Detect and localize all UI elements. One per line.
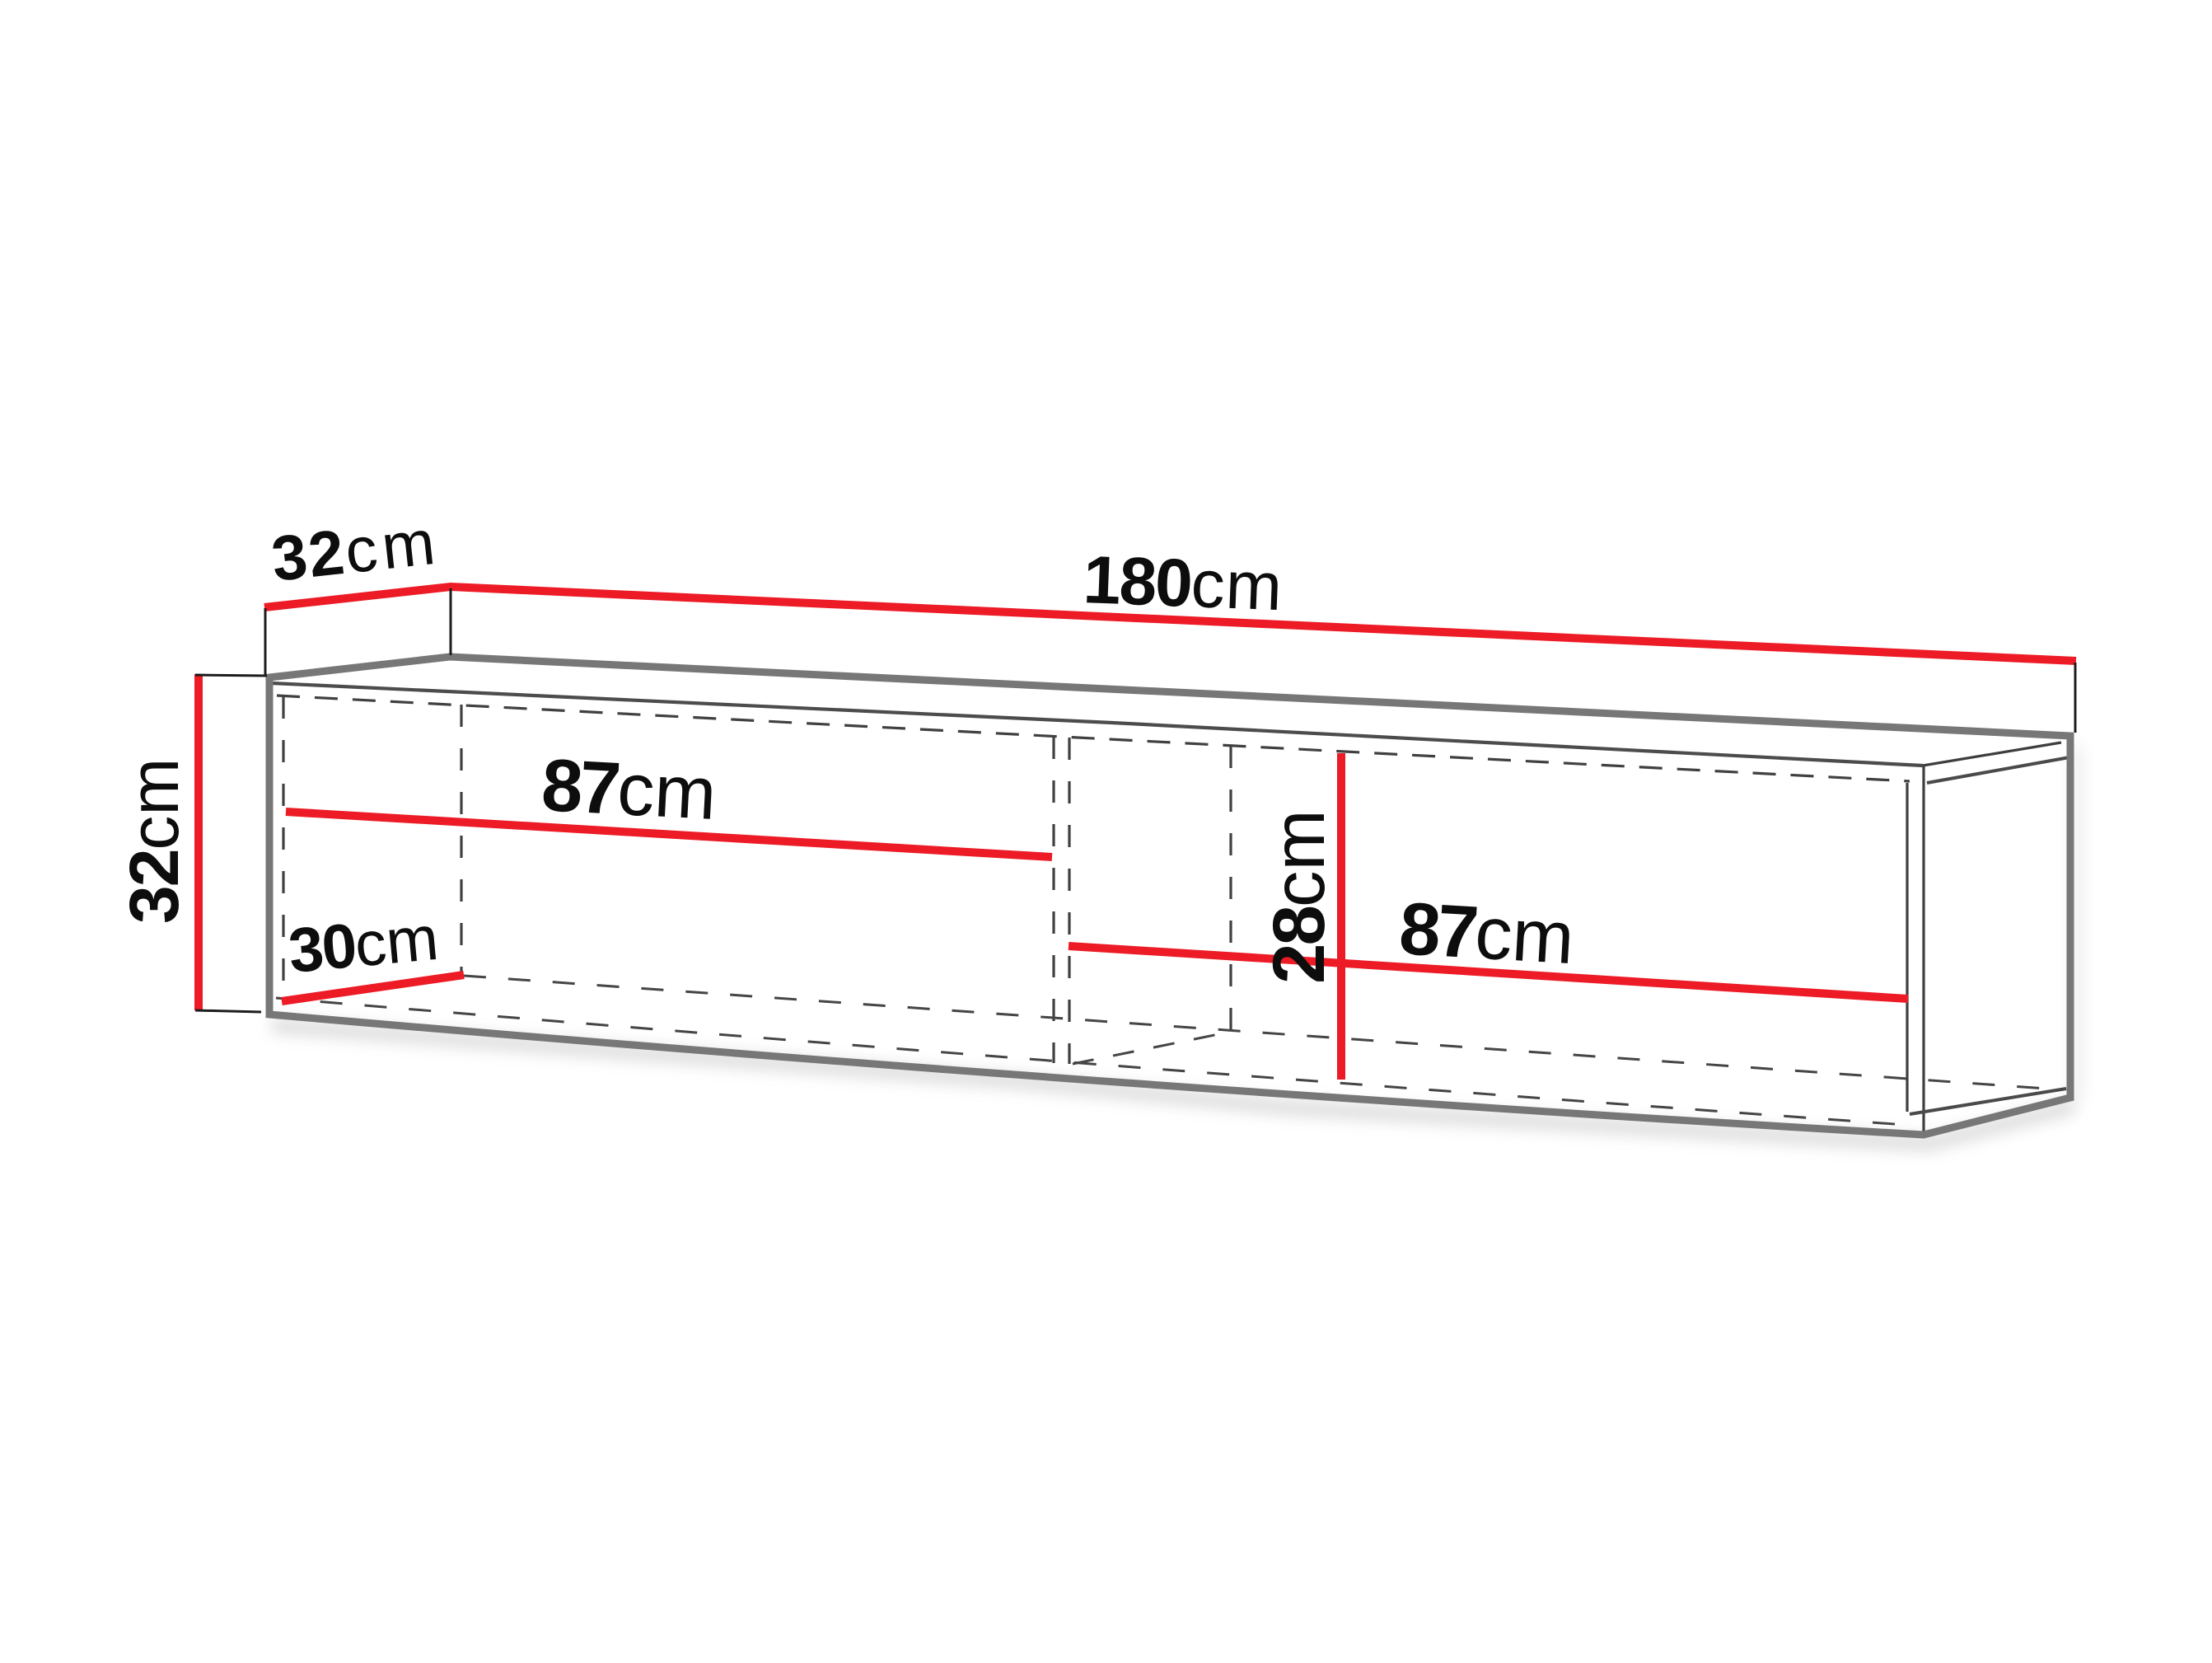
svg-text:87cm: 87cm — [540, 744, 718, 836]
svg-text:30cm: 30cm — [286, 903, 442, 986]
svg-text:28cm: 28cm — [1257, 809, 1340, 984]
svg-text:32cm: 32cm — [115, 758, 193, 924]
svg-text:180cm: 180cm — [1082, 542, 1284, 625]
svg-text:87cm: 87cm — [1397, 888, 1576, 980]
